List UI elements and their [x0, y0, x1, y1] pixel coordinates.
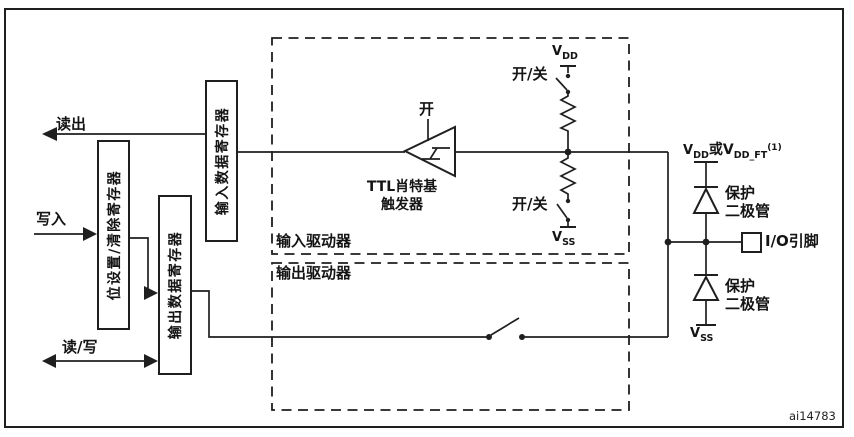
- vddft-sub2: DD_FT: [734, 150, 768, 161]
- vss-pulldown-label-sub: SS: [562, 237, 575, 248]
- pulldown-switch-contact-top: [566, 199, 570, 203]
- vss-pulldown-label-main: V: [552, 230, 562, 245]
- vddft-or: 或V: [709, 142, 734, 158]
- vss-bottom-label-main: V: [690, 326, 700, 341]
- schmitt-trigger-label-line2: 触发器: [342, 196, 462, 214]
- vdd-label-main: V: [552, 44, 562, 59]
- vdd-label-sub: DD: [562, 51, 578, 62]
- input-data-register-block: 输入数据寄存器: [205, 80, 238, 242]
- io-pin-label: I/O引脚: [765, 233, 819, 250]
- gpio-port-bit-structure-diagram: 输入数据寄存器 位设置/清除寄存器 输出数据寄存器 读出 写入 读/写 输入驱动…: [0, 0, 854, 437]
- vss-pulldown-label: VSS: [552, 231, 575, 246]
- pullup-resistor-symbol: [561, 94, 575, 152]
- read-out-label: 读出: [56, 116, 86, 133]
- protection-upper-line2: 二极管: [725, 202, 770, 220]
- odr-output-wire: [192, 291, 489, 337]
- protection-upper-line1: 保护: [725, 184, 770, 202]
- output-switch-lever-icon: [491, 318, 519, 335]
- setclr-arrowhead-icon: [144, 286, 158, 300]
- trigger-enable-label: 开: [419, 101, 434, 118]
- protection-diode-lower-label: 保护 二极管: [725, 277, 770, 313]
- output-switch-contact-right: [519, 334, 525, 340]
- output-data-register-label: 输出数据寄存器: [165, 231, 185, 340]
- protection-lower-line1: 保护: [725, 277, 770, 295]
- pullup-switch-contact-bottom: [566, 90, 570, 94]
- output-driver-label: 输出驱动器: [276, 265, 351, 282]
- pullup-switch-label: 开/关: [512, 66, 547, 83]
- setclr-to-odr-wire: [130, 238, 148, 293]
- output-data-register-block: 输出数据寄存器: [158, 195, 192, 375]
- vss-bottom-label-sub: SS: [700, 333, 713, 344]
- vss-bottom-label: VSS: [690, 327, 713, 342]
- vdd-or-vddft-label: VDD或VDD_FT(1): [683, 142, 782, 159]
- io-pin-square: [742, 233, 761, 252]
- pulldown-resistor-symbol: [561, 152, 575, 199]
- protection-lower-line2: 二极管: [725, 295, 770, 313]
- read-write-right-arrowhead-icon: [144, 354, 158, 368]
- read-out-arrowhead-icon: [42, 127, 57, 141]
- protection-diode-lower-symbol: [694, 277, 718, 300]
- protection-diode-upper-label: 保护 二极管: [725, 184, 770, 220]
- schmitt-trigger-label-line1: TTL肖特基: [342, 178, 462, 196]
- write-arrowhead-icon: [83, 227, 97, 241]
- vddft-v1: V: [683, 143, 693, 158]
- read-write-label: 读/写: [62, 339, 97, 356]
- pulldown-switch-contact-bottom: [566, 218, 570, 222]
- input-driver-label: 输入驱动器: [276, 233, 351, 250]
- input-data-register-label: 输入数据寄存器: [212, 107, 232, 216]
- pulldown-switch-lever-icon: [557, 204, 567, 218]
- vddft-sub1: DD: [693, 150, 709, 161]
- protection-diode-upper-symbol: [694, 189, 718, 213]
- schmitt-trigger-symbol: [405, 127, 455, 176]
- bit-set-reset-register-block: 位设置/清除寄存器: [97, 140, 130, 330]
- figure-id-label: ai14783: [789, 410, 836, 423]
- pullup-switch-lever-icon: [556, 78, 567, 90]
- pullup-switch-contact-top: [566, 74, 570, 78]
- vdd-label: VDD: [552, 45, 578, 60]
- write-label: 写入: [36, 211, 66, 228]
- pulldown-switch-label: 开/关: [512, 196, 547, 213]
- read-write-left-arrowhead-icon: [42, 354, 56, 368]
- bus-junction-dot: [665, 239, 672, 246]
- bit-set-reset-register-label: 位设置/清除寄存器: [104, 170, 124, 301]
- schmitt-trigger-label: TTL肖特基 触发器: [342, 178, 462, 214]
- vddft-note-superscript: (1): [767, 143, 782, 153]
